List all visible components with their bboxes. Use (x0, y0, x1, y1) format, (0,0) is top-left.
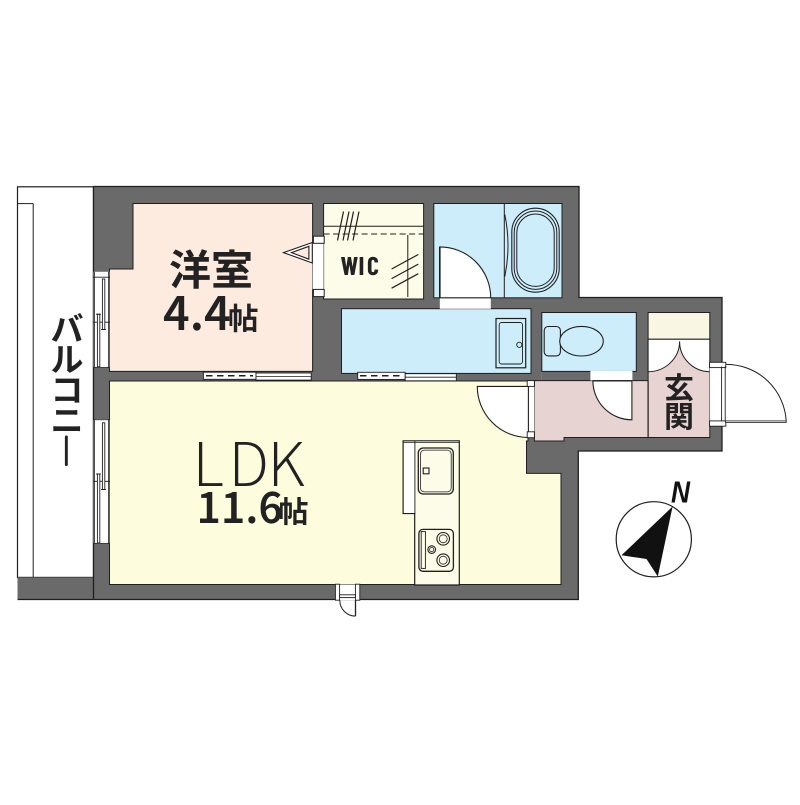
svg-text:N: N (671, 475, 691, 510)
